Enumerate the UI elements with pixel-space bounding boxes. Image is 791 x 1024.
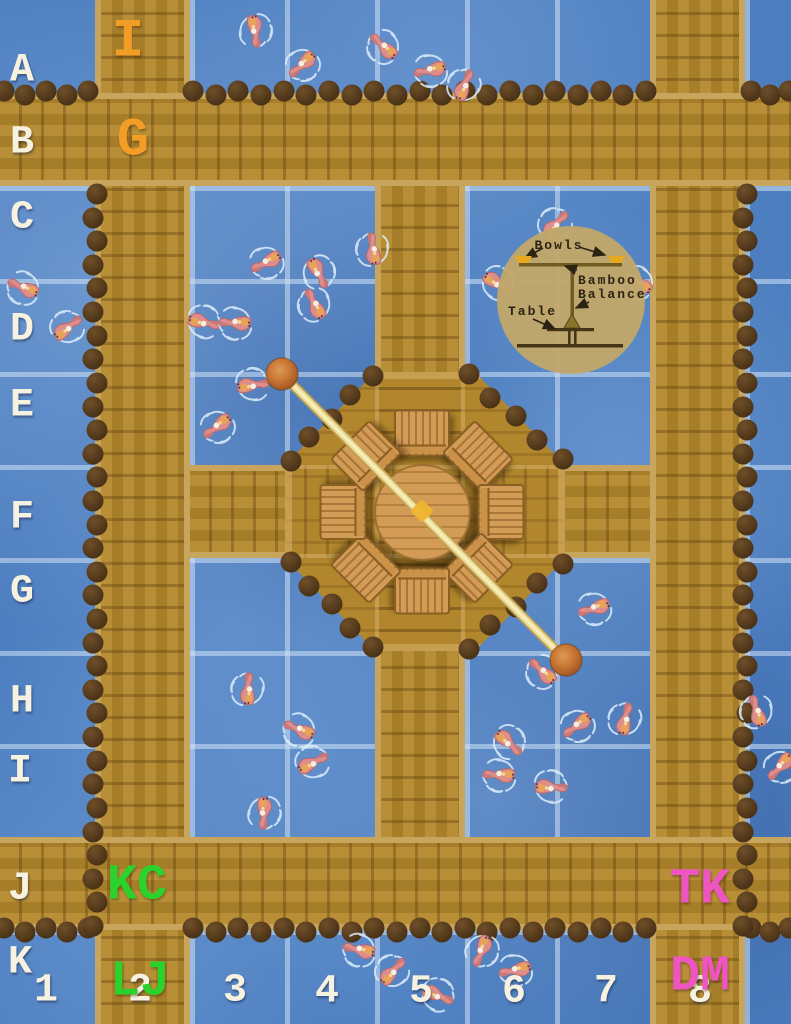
piling-post xyxy=(322,408,343,429)
piling-post xyxy=(733,916,754,937)
piling-post xyxy=(737,845,758,866)
piling-post xyxy=(87,703,108,724)
piling-post xyxy=(522,922,543,943)
row-label-e: E xyxy=(10,384,34,429)
piling-post xyxy=(0,918,15,939)
piling-post xyxy=(737,184,758,205)
piling-post xyxy=(318,918,339,939)
piling-post xyxy=(83,396,104,417)
piling-post xyxy=(477,85,498,106)
koi-fish xyxy=(225,0,284,59)
piling-post xyxy=(500,81,521,102)
piling-post xyxy=(87,325,108,346)
walkway-connector-west xyxy=(190,465,285,558)
piling-post xyxy=(273,81,294,102)
col-label-5: 5 xyxy=(409,970,433,1015)
piling-post xyxy=(341,922,362,943)
battle-map: Bowls Bamboo Balance Table xyxy=(0,0,791,1024)
koi-fish xyxy=(286,276,343,333)
piling-post xyxy=(299,427,320,448)
piling-post xyxy=(741,81,762,102)
legend-balance-pole xyxy=(571,265,575,317)
piling-post xyxy=(737,372,758,393)
stool-seat-bar xyxy=(481,488,490,536)
piling-post xyxy=(409,918,430,939)
legend-balance-label-2: Balance xyxy=(578,287,647,302)
piling-post xyxy=(432,922,453,943)
piling-post xyxy=(228,918,249,939)
col-label-1: 1 xyxy=(34,969,58,1014)
piling-post xyxy=(737,420,758,441)
piling-post xyxy=(733,443,754,464)
piling-post xyxy=(568,922,589,943)
stool xyxy=(394,568,450,615)
piling-post xyxy=(733,632,754,653)
koi-fish xyxy=(413,971,462,1020)
piling-post xyxy=(737,656,758,677)
koi-fish xyxy=(521,758,578,815)
piling-post xyxy=(545,918,566,939)
koi-fish xyxy=(360,23,409,72)
piling-post xyxy=(500,918,521,939)
koi-fish xyxy=(219,661,276,718)
koi-fish xyxy=(207,294,264,351)
piling-post xyxy=(15,922,36,943)
piling-post xyxy=(296,922,317,943)
piling-post xyxy=(83,679,104,700)
row-label-i: I xyxy=(8,750,32,795)
piling-post xyxy=(363,636,384,657)
piling-post xyxy=(409,81,430,102)
row-label-g: G xyxy=(10,570,34,615)
piling-post xyxy=(87,420,108,441)
piling-post xyxy=(228,81,249,102)
piling-post xyxy=(590,81,611,102)
stool-seat-bar xyxy=(398,445,446,454)
piling-post xyxy=(364,81,385,102)
piling-post xyxy=(733,349,754,370)
stool xyxy=(394,410,450,457)
piling-post xyxy=(205,922,226,943)
piling-post xyxy=(83,868,104,889)
piling-post xyxy=(83,302,104,323)
piling-post xyxy=(322,594,343,615)
piling-post xyxy=(183,918,204,939)
piling-post xyxy=(340,384,361,405)
piling-post xyxy=(733,302,754,323)
piling-post xyxy=(83,349,104,370)
piling-post xyxy=(459,363,480,384)
piling-post xyxy=(527,430,548,451)
piling-post xyxy=(57,922,78,943)
piling-post xyxy=(83,632,104,653)
piling-post xyxy=(733,585,754,606)
piling-post xyxy=(36,918,57,939)
koi-fish xyxy=(565,578,624,637)
piling-post xyxy=(87,231,108,252)
piling-post xyxy=(87,514,108,535)
koi-fish xyxy=(191,399,245,453)
piling-post xyxy=(553,554,574,575)
piling-post xyxy=(733,396,754,417)
piling-post xyxy=(459,639,480,660)
piling-post xyxy=(83,585,104,606)
stool-seat-bar xyxy=(355,488,364,536)
stool xyxy=(320,484,367,540)
piling-post xyxy=(87,892,108,913)
piling-post xyxy=(250,85,271,106)
piling-post xyxy=(733,679,754,700)
piling-post xyxy=(87,561,108,582)
piling-post xyxy=(779,918,791,939)
legend-balance-label-1: Bamboo xyxy=(578,273,637,288)
piling-post xyxy=(87,467,108,488)
piling-post xyxy=(737,467,758,488)
koi-fish xyxy=(484,718,533,767)
piling-post xyxy=(480,615,501,636)
piling-post xyxy=(454,918,475,939)
piling-post xyxy=(733,254,754,275)
legend-floor-line xyxy=(517,344,623,348)
walkway-connector-east xyxy=(565,465,650,558)
piling-post xyxy=(506,406,527,427)
piling-post xyxy=(87,845,108,866)
piling-post xyxy=(733,821,754,842)
piling-post xyxy=(733,207,754,228)
piling-post xyxy=(83,727,104,748)
piling-post xyxy=(737,325,758,346)
row-label-d: D xyxy=(10,308,34,353)
piling-post xyxy=(568,85,589,106)
piling-post xyxy=(432,85,453,106)
walkway-row-b xyxy=(0,93,791,186)
piling-post xyxy=(737,703,758,724)
piling-post xyxy=(480,387,501,408)
piling-post xyxy=(87,656,108,677)
piling-post xyxy=(506,596,527,617)
col-label-6: 6 xyxy=(502,970,526,1015)
piling-post xyxy=(87,184,108,205)
piling-post xyxy=(318,81,339,102)
legend-table-leg xyxy=(568,331,571,344)
piling-post xyxy=(87,278,108,299)
stool xyxy=(478,484,525,540)
koi-fish xyxy=(289,243,346,300)
piling-post xyxy=(522,85,543,106)
piling-post xyxy=(477,922,498,943)
piling-post xyxy=(636,918,657,939)
piling-post xyxy=(737,231,758,252)
piling-post xyxy=(454,81,475,102)
piling-post xyxy=(281,451,302,472)
piling-post xyxy=(613,922,634,943)
koi-fish xyxy=(486,940,545,999)
koi-fish xyxy=(598,693,652,747)
piling-post xyxy=(57,85,78,106)
piling-post xyxy=(83,916,104,937)
piling-post xyxy=(83,443,104,464)
koi-fish xyxy=(283,734,340,791)
piling-post xyxy=(737,797,758,818)
piling-post xyxy=(83,774,104,795)
legend-inset: Bowls Bamboo Balance Table xyxy=(489,218,654,383)
piling-post xyxy=(36,81,57,102)
piling-post xyxy=(527,572,548,593)
piling-post xyxy=(737,561,758,582)
piling-post xyxy=(733,868,754,889)
piling-post xyxy=(87,797,108,818)
piling-post xyxy=(83,538,104,559)
col-label-7: 7 xyxy=(594,970,618,1015)
piling-post xyxy=(87,750,108,771)
piling-post xyxy=(281,551,302,572)
piling-post xyxy=(299,575,320,596)
piling-post xyxy=(613,85,634,106)
col-label-4: 4 xyxy=(315,970,339,1015)
koi-fish xyxy=(222,355,281,414)
row-label-h: H xyxy=(10,680,34,725)
piling-post xyxy=(636,81,657,102)
piling-post xyxy=(296,85,317,106)
legend-table-leg xyxy=(574,331,577,344)
piling-post xyxy=(733,538,754,559)
piling-post xyxy=(553,448,574,469)
piling-post xyxy=(737,892,758,913)
piling-post xyxy=(733,727,754,748)
piling-post xyxy=(737,609,758,630)
row-label-k: K xyxy=(8,941,32,986)
piling-post xyxy=(386,922,407,943)
row-label-c: C xyxy=(10,196,34,241)
piling-post xyxy=(87,372,108,393)
piling-post xyxy=(545,81,566,102)
koi-fish xyxy=(0,264,48,313)
piling-post xyxy=(340,618,361,639)
piling-post xyxy=(83,821,104,842)
piling-post xyxy=(364,918,385,939)
piling-post xyxy=(590,918,611,939)
piling-post xyxy=(737,750,758,771)
piling-post xyxy=(737,514,758,535)
piling-post xyxy=(83,207,104,228)
piling-post xyxy=(205,85,226,106)
piling-post xyxy=(250,922,271,943)
piling-post xyxy=(83,490,104,511)
piling-post xyxy=(733,774,754,795)
koi-fish xyxy=(471,746,528,803)
piling-post xyxy=(760,85,781,106)
piling-post xyxy=(273,918,294,939)
piling-post xyxy=(15,85,36,106)
col-label-3: 3 xyxy=(223,969,247,1014)
piling-post xyxy=(78,81,99,102)
piling-post xyxy=(87,609,108,630)
legend-bowls-label: Bowls xyxy=(534,238,583,253)
walkway-row-j xyxy=(0,837,791,930)
legend-table-label: Table xyxy=(508,304,557,319)
piling-post xyxy=(341,85,362,106)
piling-post xyxy=(733,490,754,511)
piling-post xyxy=(83,254,104,275)
round-table xyxy=(374,464,471,561)
piling-post xyxy=(386,85,407,106)
piling-post xyxy=(760,922,781,943)
piling-post xyxy=(183,81,204,102)
piling-post xyxy=(737,278,758,299)
row-label-f: F xyxy=(10,496,34,541)
stool-seat-bar xyxy=(398,571,446,580)
piling-post xyxy=(363,366,384,387)
